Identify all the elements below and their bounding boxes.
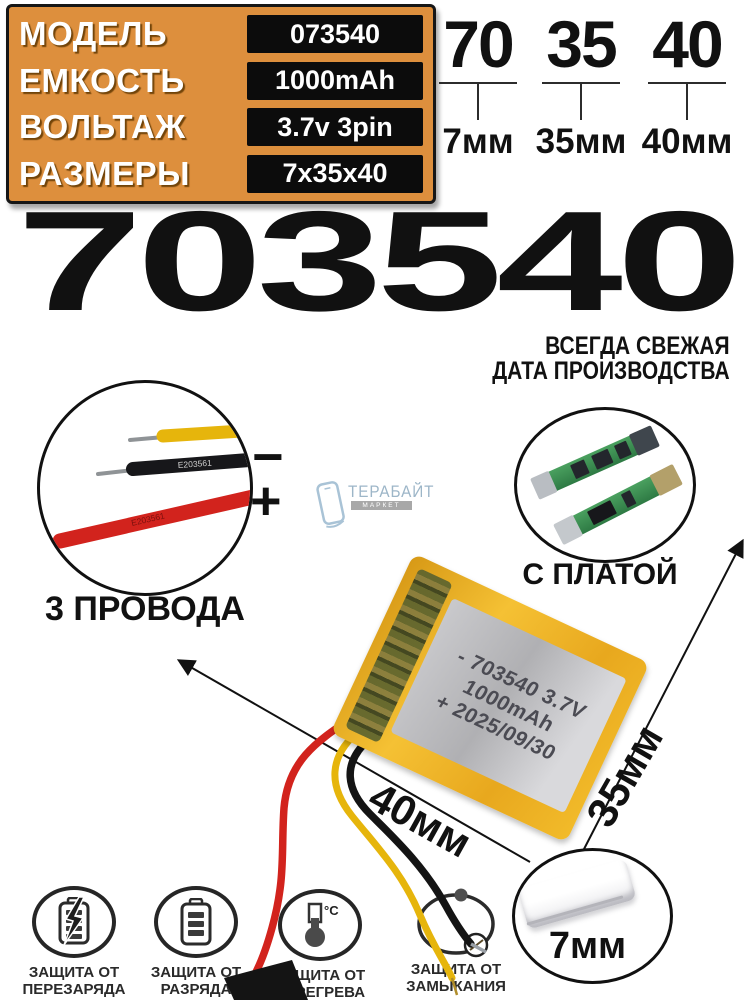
pcb-chip	[614, 441, 632, 460]
spec-label: МОДЕЛЬ	[19, 15, 167, 53]
protection-discharge: ЗАЩИТА ОТ РАЗРЯДА	[126, 886, 266, 998]
spec-value: 073540	[247, 15, 423, 53]
protection-label-line2: ПЕРЕЗАРЯДА	[4, 982, 144, 999]
pcb-pad	[530, 471, 558, 500]
callout-line	[686, 84, 688, 120]
pcb-chip	[570, 459, 590, 479]
pcb-pad	[553, 515, 583, 545]
protection-label-line2: ЗАМЫКАНИЯ	[386, 979, 526, 996]
protection-label-line1: ЗАЩИТА ОТ	[126, 965, 266, 982]
discharge-protection-icon	[154, 886, 238, 958]
pcb-photo-circle	[514, 407, 696, 563]
phone-outline-icon	[316, 479, 346, 531]
freshness-note: ВСЕГДА СВЕЖАЯ ДАТА ПРОИЗВОДСТВА	[493, 334, 730, 384]
protection-overheat: °C ЗАЩИТА ОТ ПЕРЕГРЕВА	[250, 889, 390, 1000]
battery-print: - 703540 3.7V 1000mAh + 2025/09/30	[426, 644, 590, 767]
size-mm: 35мм	[521, 122, 641, 162]
wires-photo-circle: E203561 E203561	[37, 380, 253, 596]
spec-row-model: МОДЕЛЬ 073540	[19, 13, 423, 55]
protection-overcharge: ЗАЩИТА ОТ ПЕРЕЗАРЯДА	[4, 886, 144, 998]
spec-value: 3.7v 3pin	[247, 108, 423, 146]
wires-caption: 3 ПРОВОДА	[40, 590, 250, 629]
plus-sign: +	[250, 474, 282, 528]
battery-product-infographic: МОДЕЛЬ 073540 ЕМКОСТЬ 1000mAh ВОЛЬТАЖ 3.…	[0, 0, 753, 1000]
pcb-chip	[591, 449, 614, 470]
size-callout-length: 40 40мм	[627, 12, 747, 162]
size-callout-thickness: 70 7мм	[418, 12, 538, 162]
protection-label-line1: ЗАЩИТА ОТ	[4, 965, 144, 982]
freshness-line2: ДАТА ПРОИЗВОДСТВА	[493, 359, 730, 384]
size-mm: 7мм	[418, 122, 538, 162]
overcharge-protection-icon	[32, 886, 116, 958]
pcb-chip	[621, 490, 637, 508]
spec-row-capacity: ЕМКОСТЬ 1000mAh	[19, 60, 423, 102]
size-digits: 35	[521, 12, 641, 76]
battery-side-view	[517, 858, 636, 929]
thickness-dimension-label: 7мм	[515, 925, 660, 968]
spec-label: ВОЛЬТАЖ	[19, 108, 186, 146]
size-digits: 40	[627, 12, 747, 76]
protection-short-circuit: ЗАЩИТА ОТ ЗАМЫКАНИЯ	[386, 888, 526, 995]
pcb-gold-pad	[649, 464, 683, 496]
spec-row-voltage: ВОЛЬТАЖ 3.7v 3pin	[19, 106, 423, 148]
protection-label-line1: ЗАЩИТА ОТ	[386, 962, 526, 979]
spec-label: ЕМКОСТЬ	[19, 62, 185, 100]
overheat-protection-icon: °C	[278, 889, 362, 961]
short-circuit-protection-icon	[414, 888, 498, 958]
protection-label-line2: ПЕРЕГРЕВА	[250, 985, 390, 1000]
thickness-photo-circle: 7мм	[512, 848, 673, 984]
freshness-line1: ВСЕГДА СВЕЖАЯ	[493, 334, 730, 359]
size-callout-width: 35 35мм	[521, 12, 641, 162]
protection-label-line1: ЗАЩИТА ОТ	[250, 968, 390, 985]
size-mm: 40мм	[627, 122, 747, 162]
spec-value: 1000mAh	[247, 62, 423, 100]
model-title: 703540	[0, 202, 753, 322]
watermark-sub: МАРКЕТ	[362, 501, 400, 510]
pcb-caption: С ПЛАТОЙ	[520, 558, 680, 592]
watermark-bar: МАРКЕТ	[351, 501, 412, 510]
thermometer-unit: °C	[324, 903, 339, 918]
spec-table: МОДЕЛЬ 073540 ЕМКОСТЬ 1000mAh ВОЛЬТАЖ 3.…	[6, 4, 436, 204]
pcb-chip-cap	[629, 425, 660, 456]
watermark-name: ТЕРАБАЙТ	[348, 482, 434, 502]
pcb-chip	[587, 500, 617, 525]
callout-line	[580, 84, 582, 120]
callout-line	[477, 84, 479, 120]
three-wires-photo: E203561 E203561	[40, 383, 250, 593]
protection-label-line2: РАЗРЯДА	[126, 982, 266, 999]
size-digits: 70	[418, 12, 538, 76]
